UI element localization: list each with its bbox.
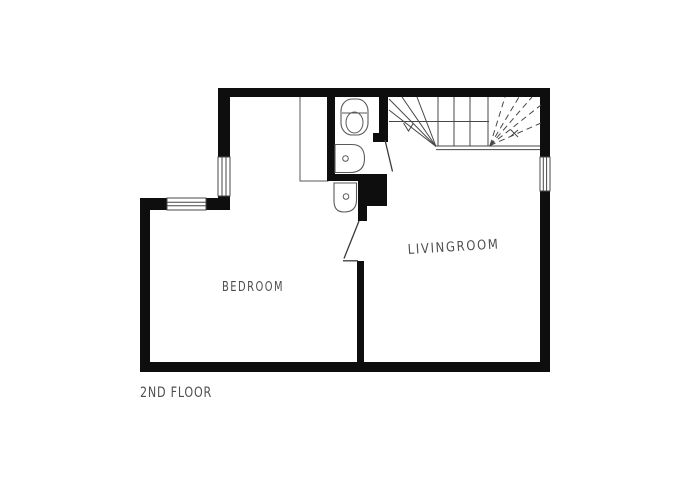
floor-title-label: 2ND FLOOR [140,385,212,401]
livingroom-label: LIVINGROOM [407,236,500,258]
wall-bathroom-left [327,97,335,181]
closet [300,96,328,181]
wall-hall-block [358,174,387,206]
floor-plan-page: BEDROOM LIVINGROOM 2ND FLOOR [0,0,700,500]
sink [334,183,357,212]
wall-stair-left [379,97,388,138]
bathroom-door-leaf [385,140,393,172]
wall-top [218,88,550,97]
wall-right-lower [540,191,550,372]
window-east-vertical [540,157,550,191]
stair-winder-line [389,99,436,147]
wall-left [140,198,150,372]
stair-winder-dashed-line [490,97,532,146]
stair-winder-dashed-line [490,105,541,146]
wall-west-segment-b [206,198,230,210]
stair-direction-arrow-icon [404,123,414,131]
wall-room-partition [357,261,364,366]
window-west-vertical [218,157,230,196]
toilet [341,99,368,135]
stair-winder-dashed-line [490,97,505,146]
wall-hall-step [358,206,367,221]
bedroom-door-leaf [344,221,359,259]
window-west-horizontal [167,198,206,210]
floor-plan-drawing: BEDROOM LIVINGROOM 2ND FLOOR [0,0,700,500]
bedroom-label: BEDROOM [222,279,284,295]
staircase [389,97,541,150]
stair-winder-dashed-line [490,97,519,146]
wall-northwest-vertical [218,97,230,157]
sink [335,145,365,173]
wall-right-upper [540,88,550,157]
wall-bottom [140,362,550,372]
